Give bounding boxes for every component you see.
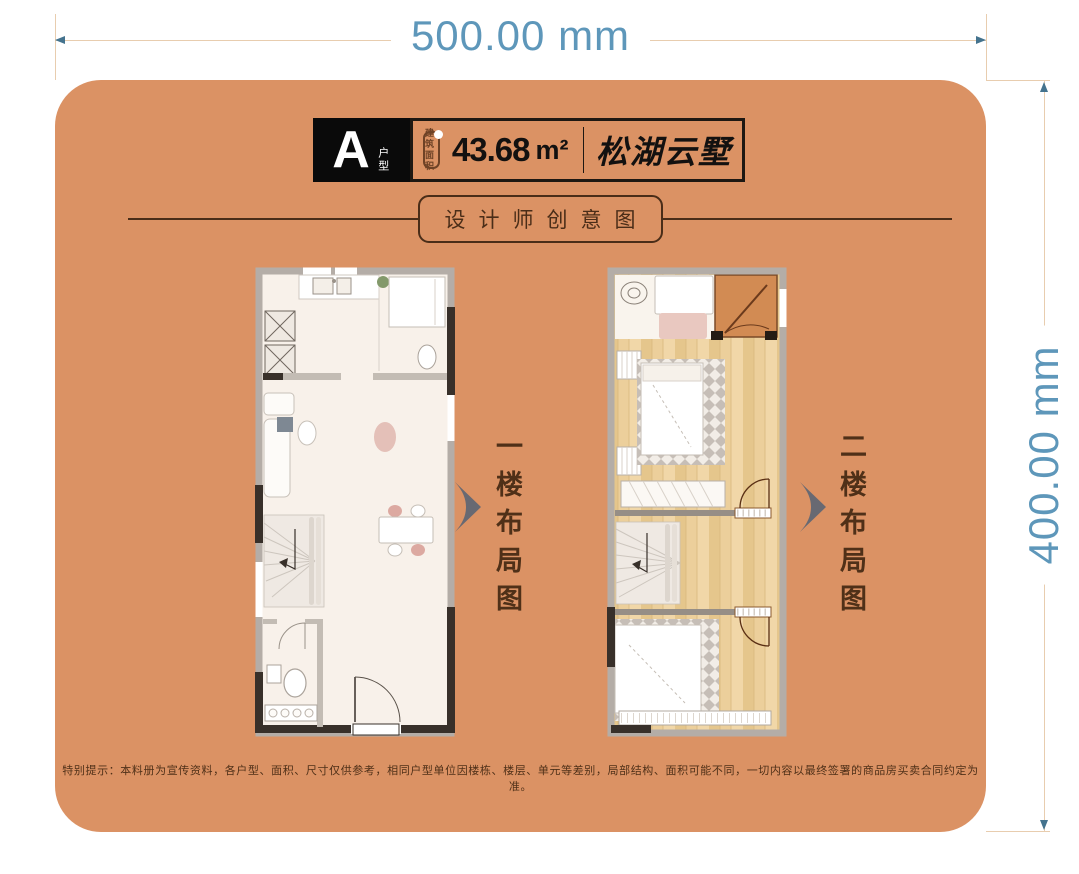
spec-box: 建筑 面积 43.68 m² 松湖云墅 [410, 118, 745, 182]
floor2-label: 二楼布局图 [832, 432, 871, 622]
area-stamp-line2: 面积 [425, 150, 438, 173]
wall-dark [447, 307, 455, 395]
unit-type-suffix: 户型 [375, 147, 391, 173]
wall-dark [607, 607, 615, 667]
toilet-icon [418, 345, 436, 369]
project-name: 松湖云墅 [596, 127, 732, 173]
plant-icon [377, 276, 389, 288]
mat [659, 313, 707, 339]
height-dimension-label-wrap: 400.00 mm [1020, 325, 1068, 584]
height-dimension-label: 400.00 mm [1020, 325, 1067, 584]
width-dimension-label-wrap: 500.00 mm [55, 12, 986, 60]
window [619, 711, 771, 725]
floor2-plan-image [607, 267, 787, 737]
title-rule-right [663, 218, 953, 220]
window [335, 268, 357, 275]
toilet-icon [284, 669, 306, 697]
section-title: 设计师创意图 [418, 195, 663, 243]
area-stamp: 建筑 面积 [423, 131, 440, 169]
floor1-label: 一楼布局图 [488, 432, 527, 622]
bed [615, 619, 719, 721]
disclaimer-text: 特别提示：本料册为宣传资料，各户型、面积、尺寸仅供参考，相同户型单位因楼栋、楼层… [55, 762, 986, 794]
bed [637, 359, 725, 465]
title-rule-left [128, 218, 418, 220]
height-extension-line-bottom [986, 831, 1050, 832]
right-chevron-icon [800, 482, 826, 532]
window [448, 395, 455, 441]
bed [389, 277, 445, 327]
width-extension-line-right [986, 14, 987, 80]
stamp-dot [434, 130, 443, 139]
area-value: 43.68 [452, 131, 530, 169]
arrow-up-icon [1040, 82, 1048, 92]
spec-divider [583, 127, 584, 173]
unit-type: A [332, 124, 370, 176]
right-chevron-icon [455, 482, 481, 532]
rug [374, 422, 396, 452]
poster-card: A 户型 建筑 面积 43.68 m² 松湖云墅 设计师创意图 [55, 80, 986, 832]
closet [621, 481, 725, 507]
arrow-down-icon [1040, 820, 1048, 830]
width-dimension-label: 500.00 mm [391, 12, 650, 59]
stairs-icon [264, 515, 324, 607]
window [303, 268, 331, 275]
section-title-band: 设计师创意图 [128, 198, 952, 240]
floor1-plan-image [255, 267, 455, 737]
stairs-icon [616, 522, 680, 604]
unit-type-box: A 户型 [313, 118, 410, 182]
sink-icon [313, 278, 333, 294]
window [256, 562, 263, 617]
entry-void [711, 275, 777, 340]
area-unit: m² [536, 135, 569, 166]
height-extension-line-top [986, 80, 1050, 81]
